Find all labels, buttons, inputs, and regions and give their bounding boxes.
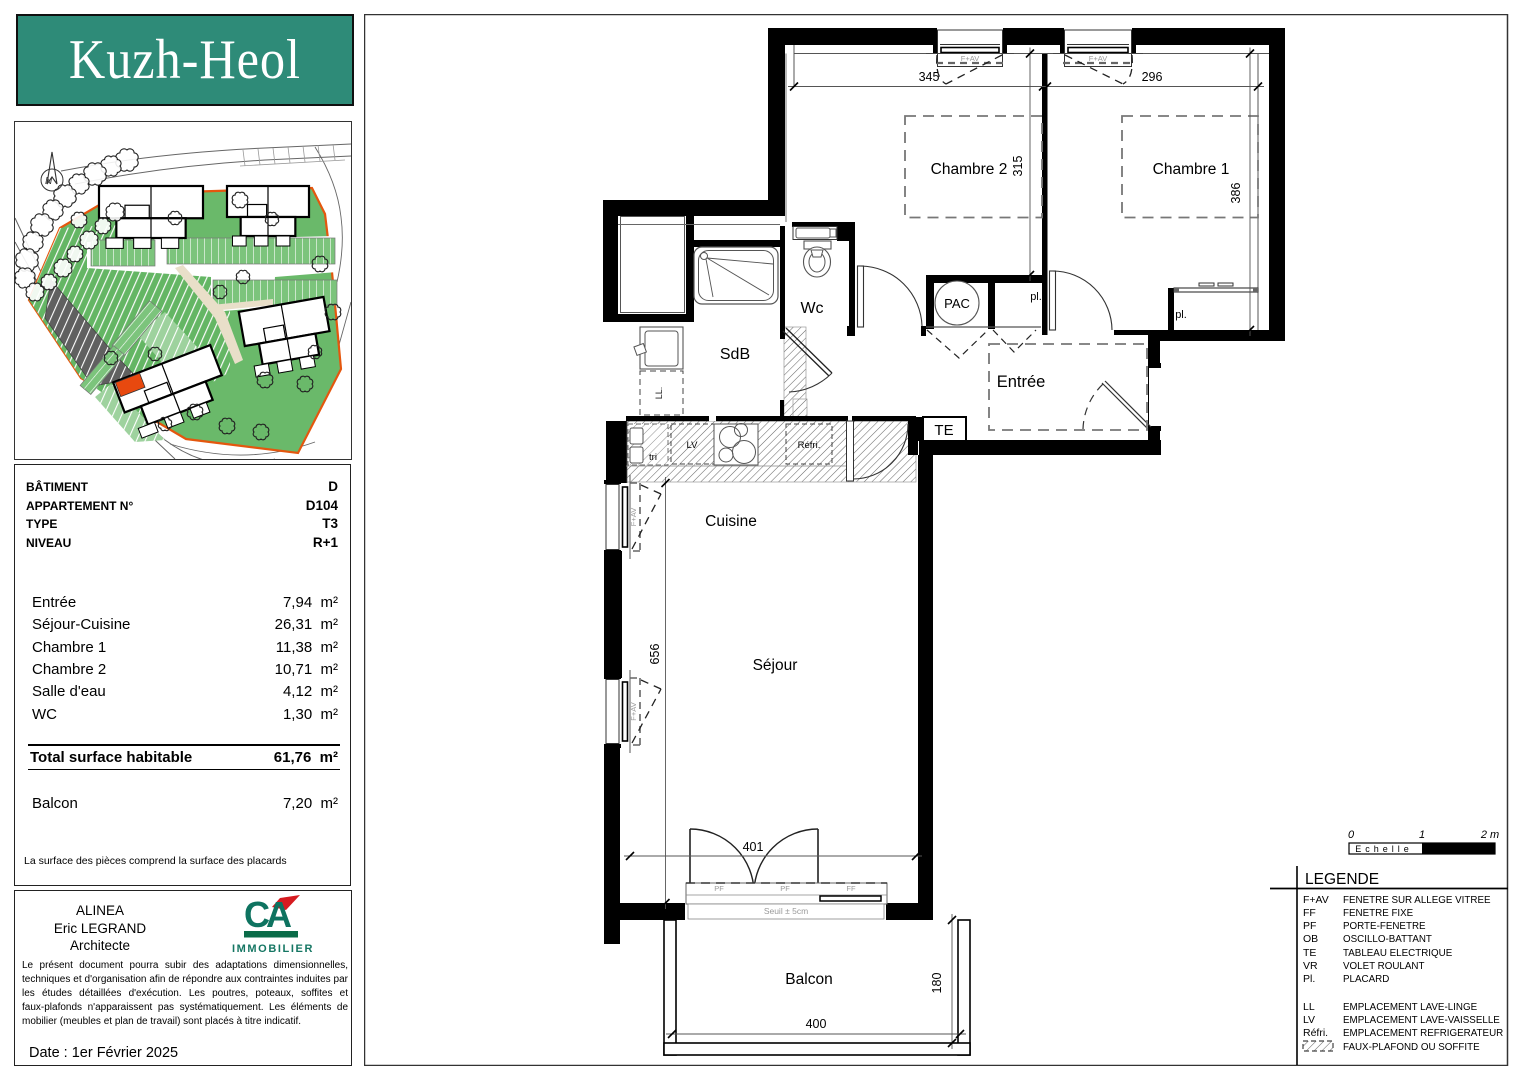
svg-text:Réfri.: Réfri. [798,440,821,451]
svg-text:F+AV: F+AV [629,702,638,720]
svg-text:656: 656 [648,644,662,665]
svg-text:PF: PF [1303,920,1316,932]
svg-text:345: 345 [919,70,940,84]
svg-text:LV: LV [687,440,699,451]
svg-text:401: 401 [743,840,764,854]
svg-text:TABLEAU ELECTRIQUE: TABLEAU ELECTRIQUE [1343,948,1453,959]
svg-text:Cuisine: Cuisine [705,513,757,530]
svg-text:400: 400 [806,1017,827,1031]
svg-text:1: 1 [1419,829,1425,841]
svg-text:Balcon: Balcon [785,971,832,988]
svg-text:FENETRE FIXE: FENETRE FIXE [1343,908,1414,919]
svg-text:PORTE-FENETRE: PORTE-FENETRE [1343,921,1426,932]
svg-text:TE: TE [934,422,953,439]
svg-text:2 m: 2 m [1480,829,1499,841]
svg-text:296: 296 [1142,70,1163,84]
svg-text:OSCILLO-BATTANT: OSCILLO-BATTANT [1343,934,1432,945]
svg-text:OB: OB [1303,933,1318,945]
svg-text:180: 180 [930,973,944,994]
svg-text:SdB: SdB [720,346,750,363]
svg-text:F+AV: F+AV [1089,54,1107,63]
svg-text:Seuil ± 5cm: Seuil ± 5cm [764,906,808,916]
svg-text:VOLET ROULANT: VOLET ROULANT [1343,961,1424,972]
svg-text:N: N [45,176,53,187]
svg-text:FENETRE SUR ALLEGE VITREE: FENETRE SUR ALLEGE VITREE [1343,895,1491,906]
svg-text:LL: LL [1303,1001,1315,1013]
svg-text:VR: VR [1303,960,1318,972]
svg-text:EMPLACEMENT LAVE-VAISSELLE: EMPLACEMENT LAVE-VAISSELLE [1343,1015,1500,1026]
svg-text:Entrée: Entrée [997,373,1046,391]
svg-text:TE: TE [1303,947,1316,959]
svg-text:Réfri.: Réfri. [1303,1027,1328,1039]
svg-text:Pl.: Pl. [1303,973,1315,985]
svg-text:F+AV: F+AV [1303,894,1329,906]
svg-text:FAUX-PLAFOND OU SOFFITE: FAUX-PLAFOND OU SOFFITE [1343,1042,1480,1053]
svg-text:0: 0 [1348,829,1355,841]
svg-text:386: 386 [1229,183,1243,204]
svg-text:IMMOBILIER: IMMOBILIER [232,943,314,955]
svg-text:Séjour: Séjour [753,657,798,674]
svg-text:FF: FF [846,884,856,893]
svg-text:PF: PF [714,884,724,893]
svg-text:PF: PF [780,884,790,893]
svg-text:tri: tri [649,452,657,463]
svg-text:F+AV: F+AV [961,54,979,63]
svg-text:CA: CA [244,894,292,935]
svg-text:PAC: PAC [944,296,970,311]
svg-text:pl.: pl. [1175,309,1187,321]
svg-text:EMPLACEMENT REFRIGERATEUR: EMPLACEMENT REFRIGERATEUR [1343,1028,1503,1039]
svg-text:EMPLACEMENT LAVE-LINGE: EMPLACEMENT LAVE-LINGE [1343,1002,1478,1013]
svg-text:pl.: pl. [1030,291,1042,303]
svg-text:315: 315 [1011,156,1025,177]
svg-text:Chambre 2: Chambre 2 [931,161,1008,178]
svg-text:LL.: LL. [654,387,664,400]
svg-text:Chambre 1: Chambre 1 [1153,161,1230,178]
svg-text:F+AV: F+AV [629,508,638,526]
svg-text:PLACARD: PLACARD [1343,974,1389,985]
svg-text:FF: FF [1303,907,1316,919]
svg-text:LV: LV [1303,1014,1315,1026]
svg-text:LEGENDE: LEGENDE [1305,871,1379,888]
svg-text:Wc: Wc [800,300,823,317]
svg-text:Echelle: Echelle [1355,844,1413,854]
